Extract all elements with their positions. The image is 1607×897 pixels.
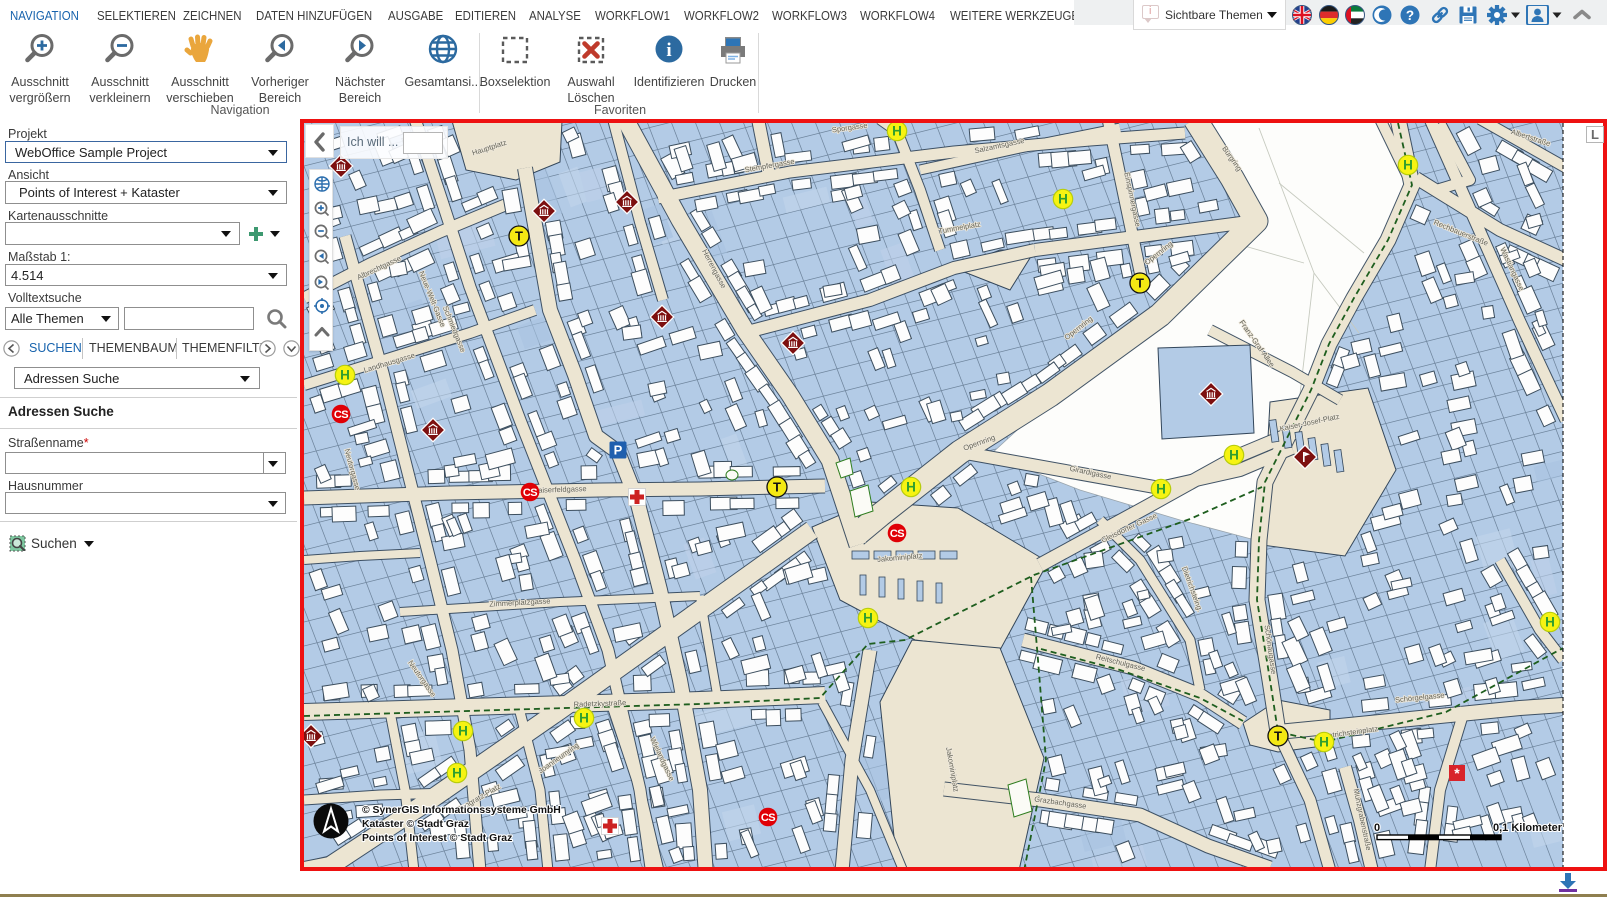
svg-text:H: H [1319,735,1329,750]
svg-text:CS: CS [761,812,775,824]
svg-text:T: T [773,480,781,495]
svg-text:CS: CS [334,409,348,421]
svg-text:H: H [340,368,350,383]
svg-text:H: H [1403,158,1413,173]
svg-text:H: H [579,711,589,726]
svg-text:Kataster © Stadt Graz: Kataster © Stadt Graz [362,819,469,830]
svg-text:0: 0 [1374,822,1380,834]
svg-text:Radetzkystraße: Radetzkystraße [574,698,627,709]
svg-text:0,1 Kilometer: 0,1 Kilometer [1493,822,1563,834]
svg-text:H: H [1058,192,1068,207]
svg-text:H: H [1229,448,1239,463]
svg-text:P: P [614,443,623,458]
svg-text:H: H [892,124,902,139]
svg-text:*: * [1454,765,1460,781]
svg-text:?: ? [1406,8,1414,23]
svg-text:CS: CS [523,487,537,499]
svg-text:H: H [458,724,468,739]
svg-text:T: T [1136,276,1144,291]
svg-text:i: i [666,40,671,61]
svg-text:T: T [515,229,523,244]
svg-text:H: H [906,480,916,495]
svg-text:H: H [1156,482,1166,497]
svg-text:Kaiserfeldgasse: Kaiserfeldgasse [533,484,587,495]
svg-text:© SynerGIS Informationssysteme: © SynerGIS Informationssysteme GmbH [362,805,561,816]
svg-text:H: H [863,611,873,626]
svg-text:CS: CS [890,528,904,540]
svg-text:H: H [1545,615,1555,630]
svg-text:Points of Interest © Stadt Gra: Points of Interest © Stadt Graz [362,833,512,844]
svg-text:H: H [452,766,462,781]
svg-text:T: T [1274,729,1282,744]
